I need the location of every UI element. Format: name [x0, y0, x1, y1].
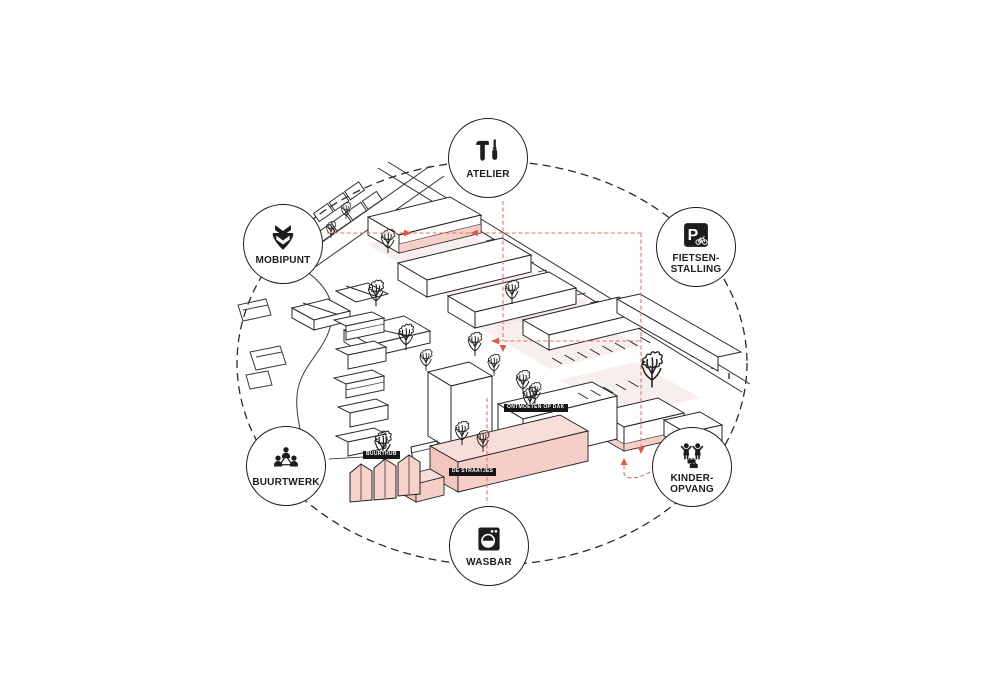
badge-buurtwerk: BUURTWERK: [246, 426, 326, 506]
badge-atelier: ATELIER: [448, 118, 528, 198]
site-tag-roof-meeting: ONTMOETEN OP DAK: [504, 404, 568, 412]
washing-machine-icon: [474, 524, 504, 554]
badge-label: MOBIPUNT: [256, 255, 311, 266]
badge-fietsenstalling: P FIETSEN-STALLING: [656, 207, 736, 287]
mobipunt-pin-icon: [268, 222, 298, 252]
tools-icon: [473, 136, 503, 166]
children-icon: [677, 440, 707, 470]
bicycle-parking-icon: P: [681, 220, 711, 250]
badge-kinderopvang: KINDER-OPVANG: [652, 427, 732, 507]
badge-label: KINDER-OPVANG: [670, 473, 714, 495]
site-tag-buurthub: BUURTHUB: [363, 451, 400, 459]
badge-label: WASBAR: [466, 557, 512, 568]
badge-label: ATELIER: [466, 169, 509, 180]
site-tag-straatjes: DE STRAATJES: [449, 468, 496, 476]
badge-label: FIETSEN-STALLING: [671, 253, 722, 275]
community-people-icon: [271, 444, 301, 474]
badge-mobipunt: MOBIPUNT: [243, 204, 323, 284]
buurthub-houses: [350, 455, 420, 502]
badge-wasbar: WASBAR: [449, 506, 529, 586]
svg-text:P: P: [688, 226, 699, 243]
buurtwerk-leader-line: [329, 457, 363, 459]
badge-label: BUURTWERK: [252, 477, 319, 488]
diagram-canvas: ONTMOETEN OP DAK BUURTHUB DE STRAATJES A…: [0, 0, 1000, 675]
